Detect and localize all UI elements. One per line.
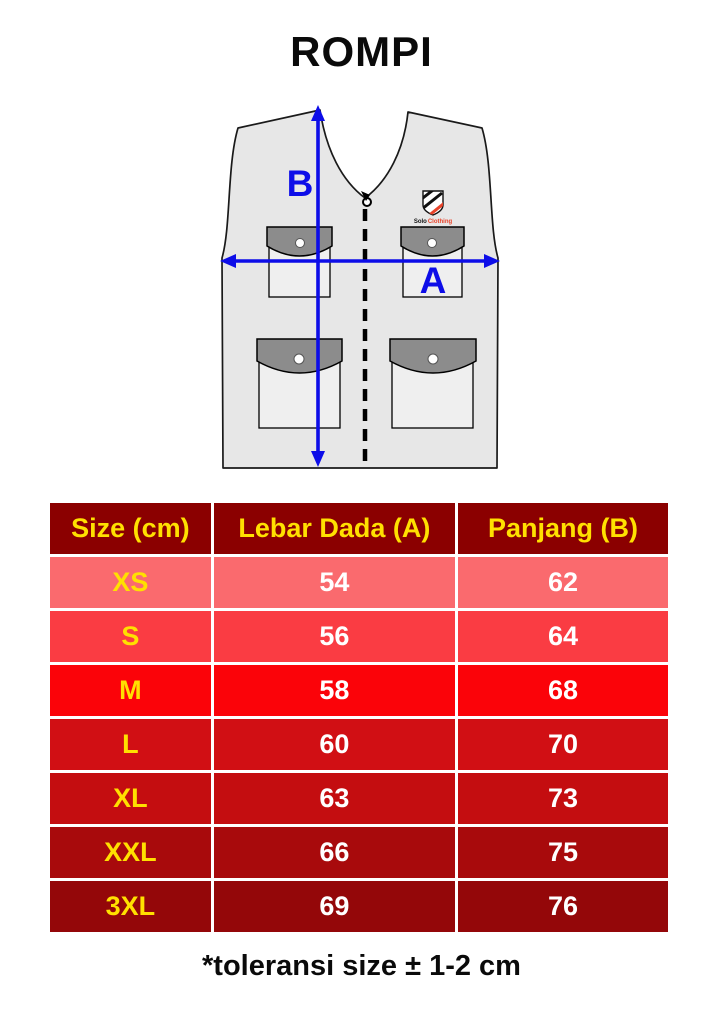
table-row: L 60 70 — [50, 719, 668, 770]
size-cell: 3XL — [50, 881, 211, 932]
size-cell: XS — [50, 557, 211, 608]
size-cell: XL — [50, 773, 211, 824]
panjang-cell: 62 — [458, 557, 668, 608]
size-cell: L — [50, 719, 211, 770]
pocket-button — [428, 354, 438, 364]
lebar-dada-cell: 66 — [214, 827, 455, 878]
vest-diagram-svg: SoloClothing B A — [190, 95, 530, 485]
vest-measurement-diagram: SoloClothing B A — [190, 95, 530, 485]
brand-logo-text: SoloClothing — [414, 219, 453, 225]
table-row: 3XL 69 76 — [50, 881, 668, 932]
size-chart-sheet: ROMPI — [0, 0, 723, 1024]
pocket-button — [296, 239, 305, 248]
pocket-button — [428, 239, 437, 248]
panjang-cell: 76 — [458, 881, 668, 932]
lebar-dada-cell: 56 — [214, 611, 455, 662]
header-lebar-dada: Lebar Dada (A) — [214, 503, 455, 554]
size-chart-table: Size (cm) Lebar Dada (A) Panjang (B) XS … — [47, 500, 671, 935]
pocket-button — [294, 354, 304, 364]
panjang-cell: 68 — [458, 665, 668, 716]
table-row: S 56 64 — [50, 611, 668, 662]
lebar-dada-cell: 54 — [214, 557, 455, 608]
table-header-row: Size (cm) Lebar Dada (A) Panjang (B) — [50, 503, 668, 554]
lower-right-pocket — [390, 339, 476, 428]
lebar-dada-cell: 60 — [214, 719, 455, 770]
table-row: XXL 66 75 — [50, 827, 668, 878]
lebar-dada-cell: 63 — [214, 773, 455, 824]
header-size: Size (cm) — [50, 503, 211, 554]
panjang-cell: 73 — [458, 773, 668, 824]
header-panjang: Panjang (B) — [458, 503, 668, 554]
panjang-cell: 70 — [458, 719, 668, 770]
width-label-a: A — [420, 260, 447, 301]
panjang-cell: 64 — [458, 611, 668, 662]
table-row: XS 54 62 — [50, 557, 668, 608]
panjang-cell: 75 — [458, 827, 668, 878]
size-cell: M — [50, 665, 211, 716]
lebar-dada-cell: 58 — [214, 665, 455, 716]
lower-left-pocket — [257, 339, 342, 428]
table-row: M 58 68 — [50, 665, 668, 716]
lebar-dada-cell: 69 — [214, 881, 455, 932]
size-cell: S — [50, 611, 211, 662]
size-cell: XXL — [50, 827, 211, 878]
length-label-b: B — [287, 163, 314, 204]
page-title: ROMPI — [0, 28, 723, 76]
tolerance-note: *toleransi size ± 1-2 cm — [0, 950, 723, 983]
table-row: XL 63 73 — [50, 773, 668, 824]
